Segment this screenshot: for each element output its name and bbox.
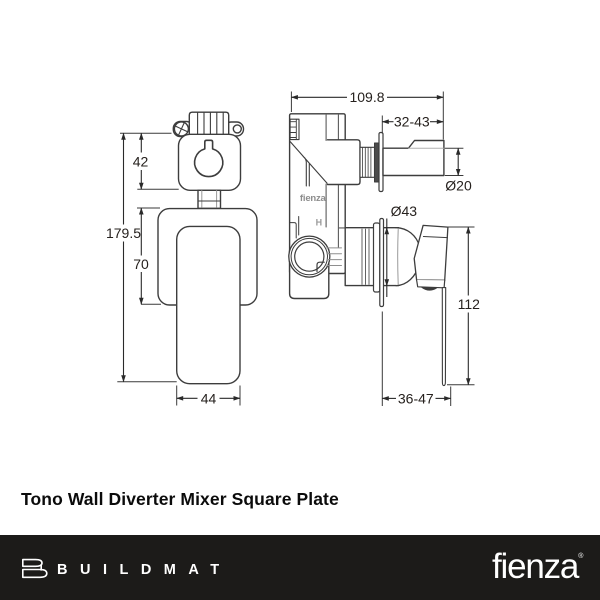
svg-text:109.8: 109.8 [349, 89, 384, 105]
svg-text:36-47: 36-47 [398, 390, 434, 406]
svg-text:fienza: fienza [300, 193, 327, 204]
svg-text:112: 112 [458, 296, 481, 312]
svg-text:42: 42 [133, 154, 149, 170]
svg-text:44: 44 [201, 390, 217, 406]
svg-text:Ø43: Ø43 [391, 203, 418, 219]
svg-text:70: 70 [133, 256, 149, 272]
svg-text:Ø20: Ø20 [445, 178, 472, 194]
svg-text:179.5: 179.5 [106, 225, 141, 241]
svg-text:H: H [316, 218, 323, 228]
svg-text:32-43: 32-43 [394, 114, 430, 130]
